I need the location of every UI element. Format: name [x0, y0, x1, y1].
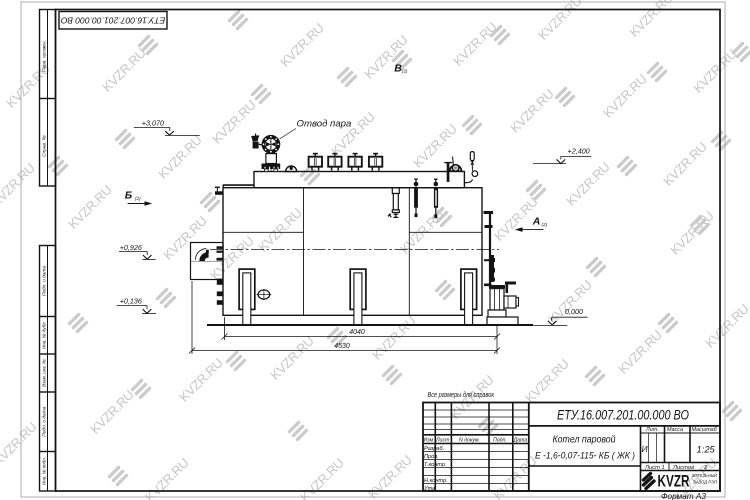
svg-text:Подп. и дата: Подп. и дата	[41, 266, 47, 296]
svg-text:Разраб.: Разраб.	[424, 446, 444, 452]
svg-text:Подп.: Подп.	[493, 438, 507, 444]
svg-text:Перв. примен.: Перв. примен.	[41, 40, 47, 72]
svg-text:4530: 4530	[334, 343, 350, 350]
svg-text:ЕТУ.16.007.201.00.000 ВО: ЕТУ.16.007.201.00.000 ВО	[60, 16, 165, 26]
svg-text:0,000: 0,000	[565, 307, 583, 316]
svg-text:Котел паровой: Котел паровой	[553, 435, 616, 446]
svg-text:Лит.: Лит.	[645, 427, 659, 433]
svg-text:(2): (2)	[542, 222, 548, 227]
svg-text:+2,400: +2,400	[568, 146, 590, 155]
svg-text:KVZR: KVZR	[658, 473, 690, 491]
svg-text:Инв. № подл.: Инв. № подл.	[41, 457, 46, 485]
svg-text:N докум.: N докум.	[459, 438, 480, 444]
svg-text:Лист: Лист	[644, 465, 660, 471]
svg-text:Т.контр.: Т.контр.	[424, 462, 447, 468]
svg-text:4040: 4040	[349, 329, 365, 336]
svg-text:+0,136: +0,136	[120, 296, 142, 305]
svg-text:КОТЕЛЬНЫЙ: КОТЕЛЬНЫЙ	[692, 473, 718, 478]
svg-text:Инв. № дубл.: Инв. № дубл.	[41, 321, 46, 349]
svg-text:+0,926: +0,926	[120, 243, 142, 252]
svg-text:Дата: Дата	[513, 438, 528, 444]
svg-text:Формат А3: Формат А3	[661, 492, 706, 500]
svg-text:Справ. №: Справ. №	[41, 135, 47, 157]
svg-text:А: А	[532, 216, 541, 228]
svg-text:ЕТУ.16.007.201.00.000 ВО: ЕТУ.16.007.201.00.000 ВО	[557, 407, 689, 423]
svg-text:Все размеры для справок: Все размеры для справок	[428, 391, 495, 399]
svg-text:Отвод пара: Отвод пара	[297, 119, 352, 130]
svg-text:Взам. инв. №: Взам. инв. №	[41, 359, 46, 387]
svg-text:Б: Б	[125, 190, 133, 202]
svg-text:Масса: Масса	[667, 427, 683, 433]
svg-text:+3,070: +3,070	[142, 119, 164, 128]
svg-text:И: И	[642, 444, 649, 454]
svg-text:1:25: 1:25	[697, 444, 716, 455]
svg-text:1: 1	[662, 465, 665, 471]
svg-text:Утв.: Утв.	[423, 486, 437, 492]
svg-text:Лист: Лист	[435, 438, 450, 444]
svg-text:ЗАВОД РЭП: ЗАВОД РЭП	[693, 480, 718, 485]
svg-text:Е -1,6-0,07-115- КБ ( ЖК ): Е -1,6-0,07-115- КБ ( ЖК )	[535, 451, 635, 462]
svg-text:Изм: Изм	[424, 438, 434, 444]
svg-text:Пров.: Пров.	[424, 454, 439, 460]
svg-text:(2): (2)	[402, 69, 408, 74]
svg-text:Подп. и дата: Подп. и дата	[41, 406, 47, 436]
svg-text:Н.контр.: Н.контр.	[424, 478, 448, 484]
svg-text:Масштаб: Масштаб	[692, 427, 718, 433]
svg-text:(2): (2)	[135, 196, 141, 201]
svg-text:Листов: Листов	[672, 465, 694, 471]
